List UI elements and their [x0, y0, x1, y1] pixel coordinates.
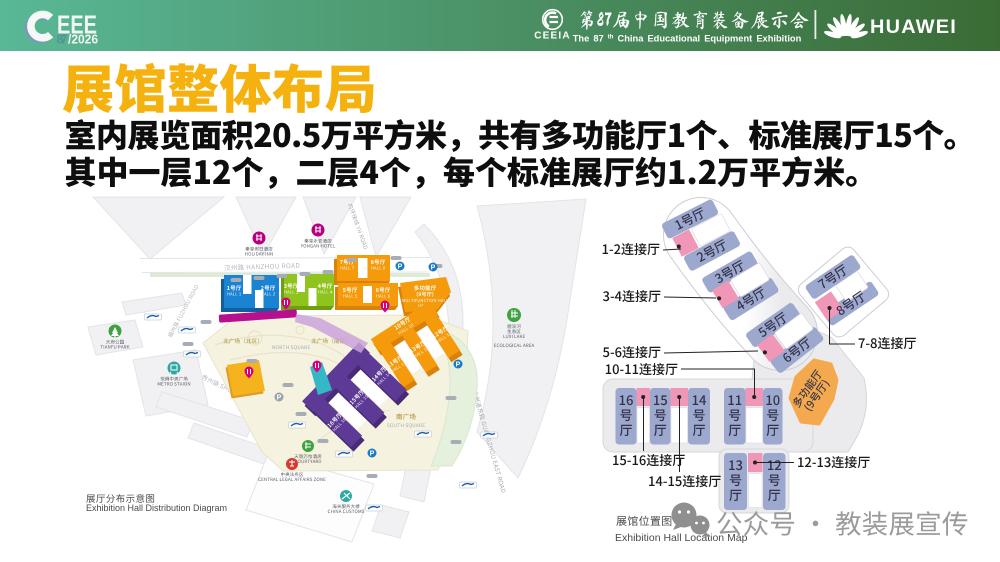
svg-text:Exhibition Hall Location Map: Exhibition Hall Location Map: [615, 532, 748, 544]
svg-text:87: 87: [57, 33, 68, 47]
svg-text:P: P: [456, 362, 461, 369]
svg-text:HUAWEI: HUAWEI: [870, 16, 957, 38]
svg-text:P: P: [277, 395, 282, 402]
svg-text:P: P: [431, 265, 436, 272]
svg-text:Exhibition Hall Distribution D: Exhibition Hall Distribution Diagram: [86, 503, 227, 513]
svg-text:The 87 th China Educational Eq: The 87 th China Educational Equipment Ex…: [573, 34, 802, 44]
svg-text:/2026: /2026: [68, 33, 98, 47]
svg-text:P: P: [398, 264, 403, 271]
svg-text:CEEIA: CEEIA: [534, 31, 571, 42]
svg-text:P: P: [370, 451, 375, 458]
